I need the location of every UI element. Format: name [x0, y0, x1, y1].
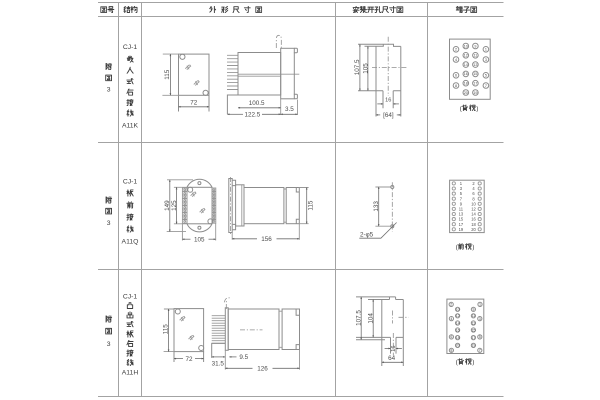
svg-text:11: 11: [473, 54, 477, 58]
svg-text:8: 8: [455, 84, 457, 88]
svg-text:): ): [476, 105, 478, 112]
svg-text:1: 1: [485, 48, 487, 52]
svg-text:16: 16: [385, 98, 391, 104]
svg-text:15: 15: [473, 72, 477, 76]
svg-text:115: 115: [164, 69, 171, 80]
svg-text:10: 10: [464, 44, 468, 48]
svg-text:CJ-1: CJ-1: [123, 44, 138, 51]
svg-text:7: 7: [479, 349, 481, 353]
svg-text:4: 4: [455, 58, 457, 62]
svg-text:10: 10: [456, 308, 460, 312]
svg-text:133: 133: [373, 201, 380, 212]
svg-text:64: 64: [388, 355, 396, 362]
svg-text:3: 3: [107, 220, 111, 227]
svg-text:6: 6: [455, 74, 457, 78]
svg-text:105: 105: [194, 236, 205, 243]
svg-text:11: 11: [471, 314, 475, 318]
svg-text:115: 115: [308, 200, 315, 211]
svg-text:9: 9: [474, 44, 476, 48]
svg-text:A11K: A11K: [122, 122, 139, 129]
svg-text:4: 4: [450, 317, 452, 321]
svg-text:9: 9: [472, 308, 474, 312]
svg-text:2: 2: [450, 303, 452, 307]
svg-text:15: 15: [471, 328, 475, 332]
svg-text:20: 20: [456, 344, 460, 348]
svg-text:20: 20: [471, 227, 476, 232]
svg-text:16: 16: [456, 328, 460, 332]
svg-text:19: 19: [471, 344, 475, 348]
svg-text:1: 1: [479, 303, 481, 307]
svg-text:72: 72: [185, 356, 193, 363]
svg-text:8: 8: [450, 349, 452, 353]
svg-text:20: 20: [464, 91, 468, 95]
svg-text:19: 19: [473, 91, 477, 95]
svg-text:12: 12: [456, 314, 460, 318]
svg-text:3.5: 3.5: [285, 106, 294, 113]
svg-text:18: 18: [464, 82, 468, 86]
svg-text:16: 16: [464, 72, 468, 76]
svg-text:125: 125: [171, 200, 178, 211]
svg-text:100.5: 100.5: [249, 100, 265, 107]
svg-text:19: 19: [459, 227, 464, 232]
svg-text:16: 16: [391, 345, 397, 351]
svg-text:17: 17: [473, 82, 477, 86]
svg-text:3: 3: [107, 341, 111, 348]
svg-text:17: 17: [471, 336, 475, 340]
svg-text:122.5: 122.5: [245, 112, 261, 119]
svg-text:7: 7: [485, 84, 487, 88]
svg-text:14: 14: [456, 321, 460, 325]
svg-text:105: 105: [362, 63, 369, 74]
svg-text:126: 126: [257, 366, 268, 373]
svg-text:12: 12: [464, 54, 468, 58]
svg-text:2-φ5: 2-φ5: [360, 232, 374, 239]
svg-text:156: 156: [261, 236, 272, 243]
svg-text:[64]: [64]: [383, 112, 394, 119]
svg-text:3: 3: [107, 87, 111, 94]
svg-text:72: 72: [190, 100, 198, 107]
svg-text:18: 18: [456, 336, 460, 340]
svg-text:6: 6: [450, 335, 452, 339]
svg-text:2: 2: [455, 48, 457, 52]
svg-text:5: 5: [479, 335, 481, 339]
svg-text:): ): [472, 359, 474, 366]
svg-text:9.5: 9.5: [239, 354, 248, 361]
svg-text:CJ-1: CJ-1: [123, 293, 138, 300]
svg-text:13: 13: [473, 63, 477, 67]
svg-text:115: 115: [163, 324, 170, 335]
svg-text:CJ-1: CJ-1: [123, 178, 138, 185]
svg-text:14: 14: [464, 63, 468, 67]
svg-text:A11H: A11H: [122, 370, 139, 377]
svg-text:5: 5: [485, 74, 487, 78]
svg-text:107.5: 107.5: [354, 59, 361, 75]
svg-text:13: 13: [471, 321, 475, 325]
svg-text:31.5: 31.5: [212, 360, 225, 367]
svg-text:3: 3: [479, 317, 481, 321]
svg-text:3: 3: [485, 58, 487, 62]
svg-text:107.5: 107.5: [356, 310, 363, 326]
svg-text:104: 104: [368, 313, 375, 324]
svg-text:A11Q: A11Q: [122, 239, 139, 246]
svg-text:): ): [472, 244, 474, 251]
